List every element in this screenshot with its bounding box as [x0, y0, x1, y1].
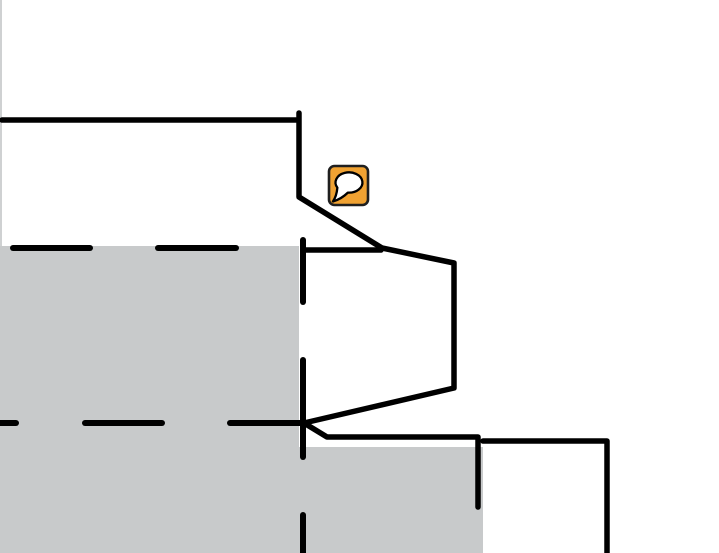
floor-region-bottom	[299, 447, 483, 553]
drawing-page	[0, 0, 719, 553]
floor-region-left	[0, 246, 299, 553]
drawing-canvas[interactable]	[0, 0, 719, 553]
comment-marker[interactable]	[329, 166, 368, 205]
